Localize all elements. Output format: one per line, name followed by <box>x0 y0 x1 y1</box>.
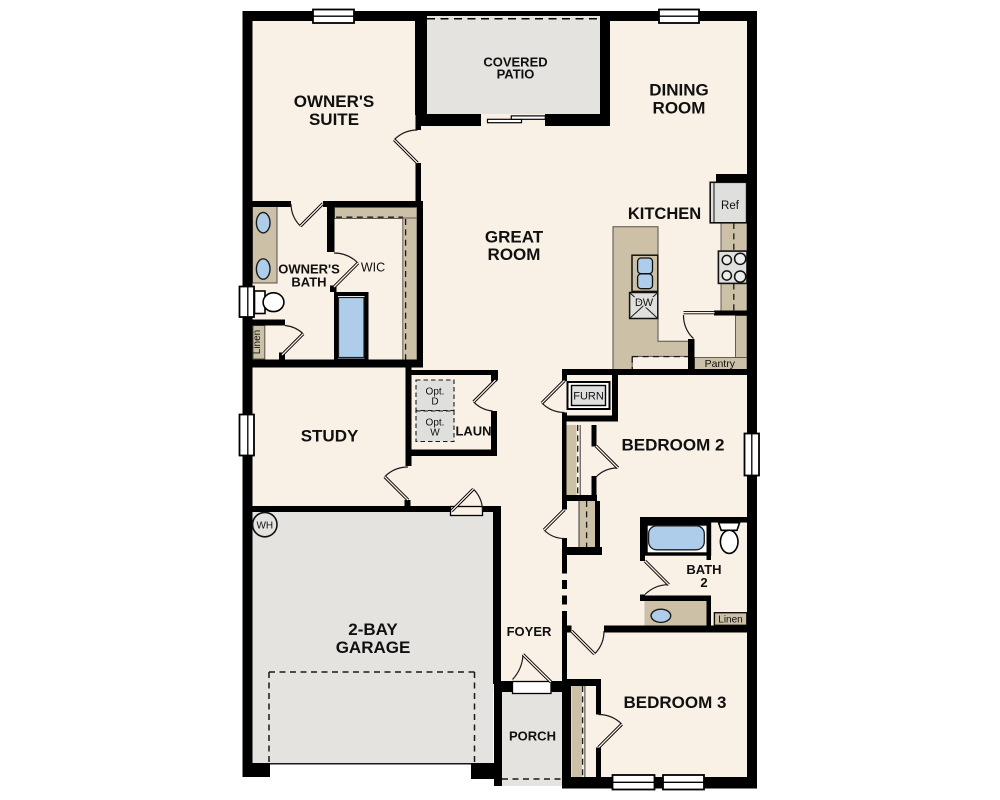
svg-text:BEDROOM 3: BEDROOM 3 <box>624 693 727 712</box>
svg-text:SUITE: SUITE <box>309 110 359 129</box>
svg-text:ROOM: ROOM <box>653 99 706 118</box>
svg-text:STUDY: STUDY <box>301 427 359 446</box>
svg-text:D: D <box>431 397 438 408</box>
svg-text:WIC: WIC <box>361 261 385 275</box>
svg-text:FURN: FURN <box>573 391 604 403</box>
svg-text:Ref: Ref <box>721 200 740 212</box>
svg-text:W: W <box>430 428 440 439</box>
svg-text:BATH: BATH <box>291 275 326 290</box>
svg-text:Pantry: Pantry <box>705 358 736 370</box>
svg-text:GARAGE: GARAGE <box>336 638 411 657</box>
svg-text:LAUN: LAUN <box>455 424 491 439</box>
svg-text:FOYER: FOYER <box>507 624 552 639</box>
svg-text:DINING: DINING <box>649 81 709 100</box>
svg-text:GREAT: GREAT <box>485 228 544 247</box>
svg-text:PATIO: PATIO <box>497 67 535 82</box>
svg-text:BEDROOM 2: BEDROOM 2 <box>622 436 725 455</box>
svg-text:KITCHEN: KITCHEN <box>628 205 701 223</box>
svg-text:PORCH: PORCH <box>509 729 556 744</box>
svg-text:2: 2 <box>700 575 707 590</box>
svg-text:OWNER'S: OWNER'S <box>294 92 375 111</box>
svg-text:Linen: Linen <box>252 330 263 354</box>
svg-text:ROOM: ROOM <box>488 245 541 264</box>
svg-text:DW: DW <box>635 297 654 309</box>
svg-text:2-BAY: 2-BAY <box>348 620 398 639</box>
svg-text:Linen: Linen <box>718 615 742 626</box>
svg-text:WH: WH <box>256 520 273 531</box>
